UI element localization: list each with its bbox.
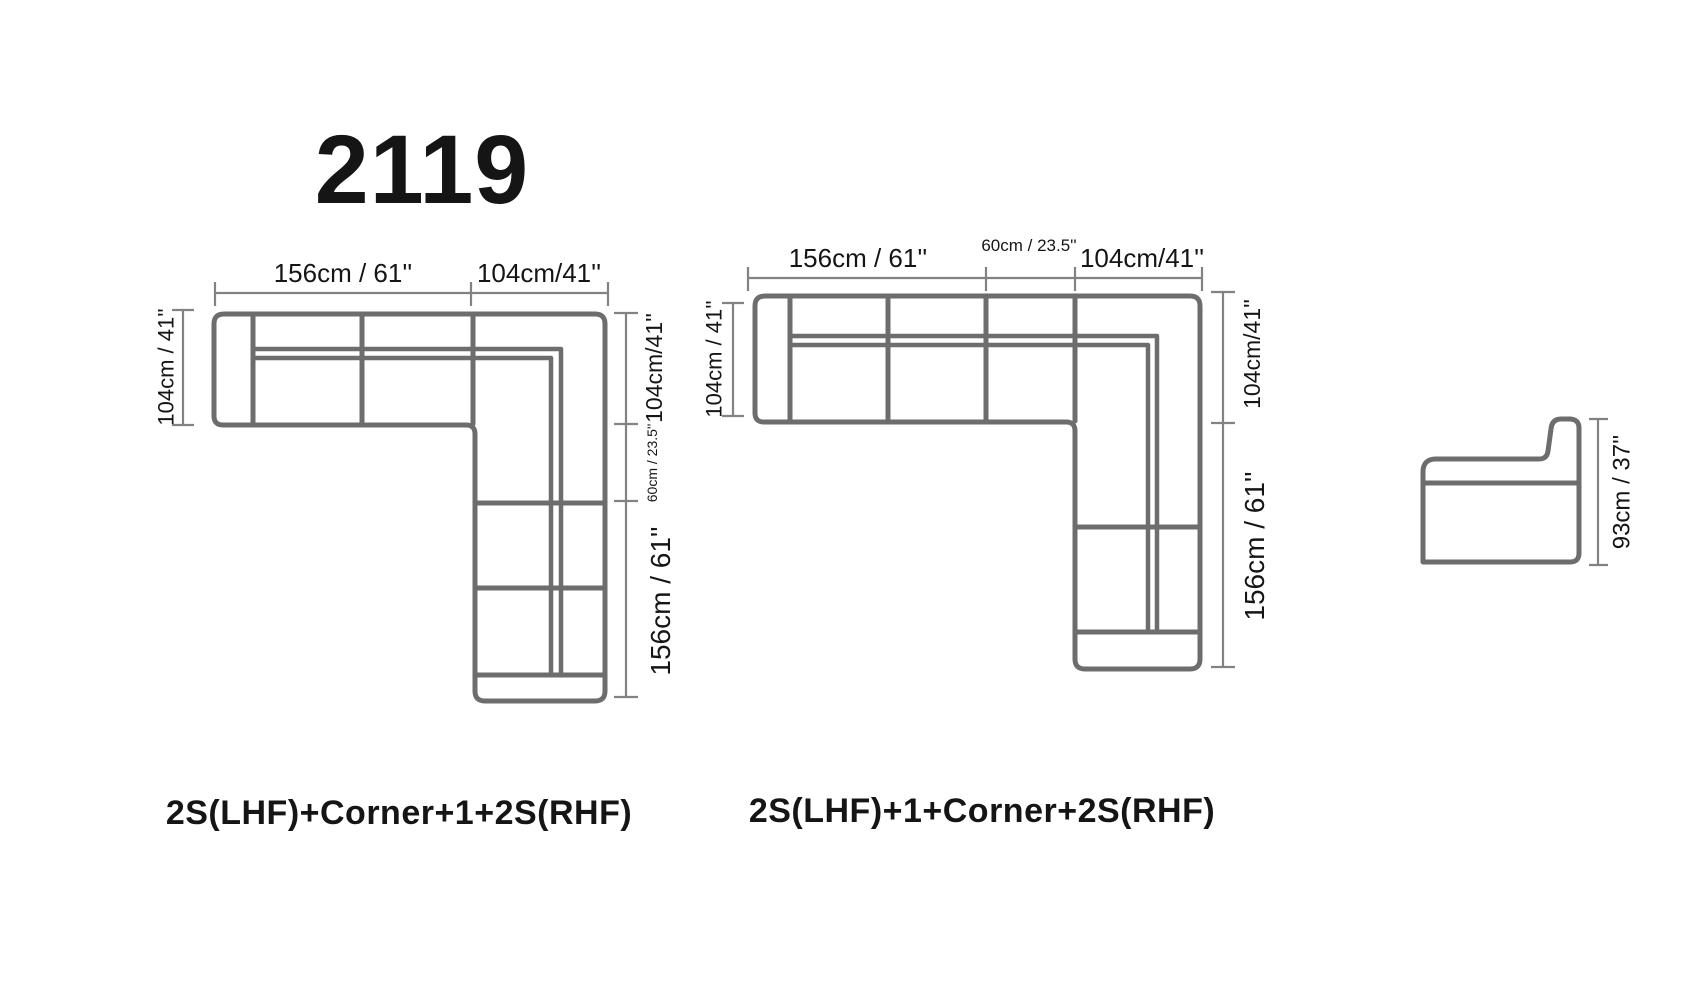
middle-sofa-section-dividers — [790, 298, 1198, 632]
left-sofa-outline — [214, 314, 605, 701]
side-view-height-label: 93cm / 37'' — [1608, 435, 1635, 550]
left-sofa-backrest-line-outer — [255, 349, 561, 673]
left-dim-left-label: 104cm / 41'' — [154, 308, 179, 425]
page-title: 2119 — [315, 115, 529, 224]
middle-dim-top-corner-label: 104cm/41'' — [1080, 243, 1204, 273]
left-dim-top-main-label: 156cm / 61'' — [274, 258, 413, 288]
middle-sofa-outline — [755, 296, 1200, 669]
side-view: 93cm / 37'' — [1423, 419, 1635, 565]
middle-dim-right-corner-label: 104cm/41'' — [1239, 299, 1265, 409]
left-sofa-backrest-line-inner — [255, 358, 551, 673]
middle-dim-left-label: 104cm / 41'' — [702, 300, 727, 417]
left-diagram-caption: 2S(LHF)+Corner+1+2S(RHF) — [166, 794, 632, 832]
left-dim-right-corner-label: 104cm/41'' — [641, 313, 667, 423]
middle-dim-top-single-label: 60cm / 23.5'' — [981, 236, 1076, 255]
left-dim-top-corner-label: 104cm/41'' — [477, 258, 601, 288]
diagram-left: 156cm / 61'' 104cm/41'' 104cm / 41'' 104… — [154, 258, 676, 832]
middle-dim-top-main-label: 156cm / 61'' — [789, 243, 928, 273]
middle-sofa-backrest-line-inner — [792, 345, 1148, 630]
left-dim-right-chaise-label: 156cm / 61'' — [645, 526, 676, 675]
middle-dim-right-chaise-label: 156cm / 61'' — [1239, 471, 1270, 620]
side-view-outline — [1423, 419, 1579, 562]
page: 2119 156cm / 61'' 104cm/41'' 104cm / 41'… — [0, 0, 1696, 996]
diagram-canvas: 2119 156cm / 61'' 104cm/41'' 104cm / 41'… — [0, 0, 1696, 996]
left-dim-right-single-label: 60cm / 23.5'' — [644, 424, 660, 503]
middle-diagram-caption: 2S(LHF)+1+Corner+2S(RHF) — [749, 792, 1215, 830]
diagram-middle: 156cm / 61'' 60cm / 23.5'' 104cm/41'' 10… — [702, 236, 1270, 830]
middle-sofa-backrest-line-outer — [792, 336, 1157, 630]
